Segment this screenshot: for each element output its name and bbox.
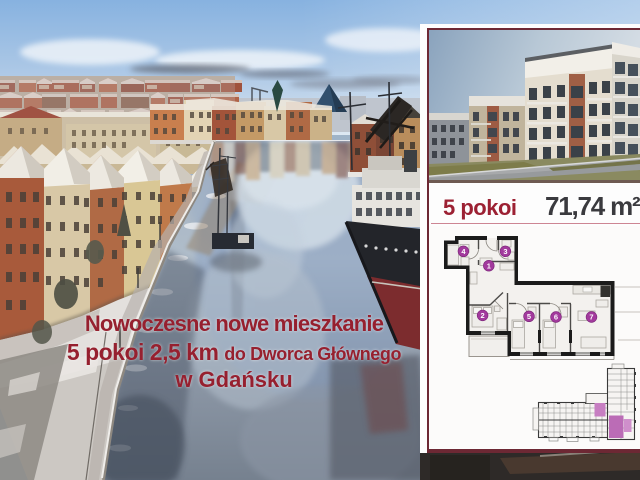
svg-text:6: 6 (554, 313, 558, 322)
svg-text:1: 1 (487, 261, 491, 270)
svg-text:3: 3 (503, 247, 507, 256)
svg-text:5: 5 (527, 312, 531, 321)
svg-text:2: 2 (481, 311, 485, 320)
svg-text:7: 7 (589, 313, 593, 322)
